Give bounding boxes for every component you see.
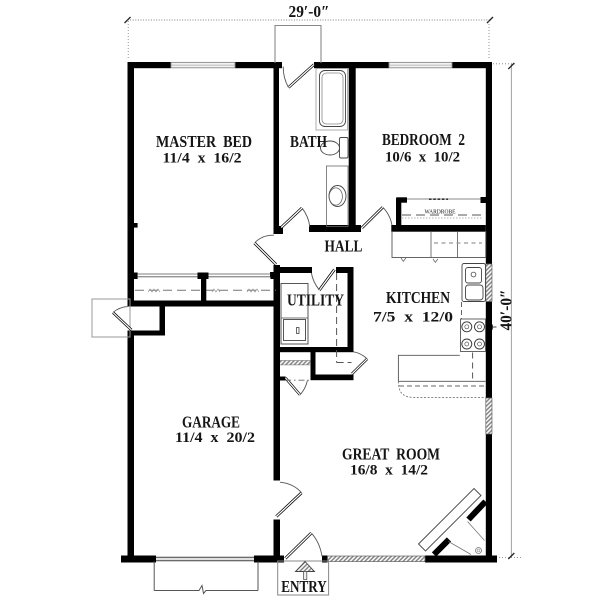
svg-text:40′-0″: 40′-0″ [497,290,516,331]
svg-text:ENTRY: ENTRY [281,577,327,596]
svg-text:10/6 x 10/2: 10/6 x 10/2 [385,150,460,166]
svg-text:11/4 x 16/2: 11/4 x 16/2 [163,151,242,167]
svg-text:BATH: BATH [290,132,327,151]
svg-text:16/8 x 14/2: 16/8 x 14/2 [350,463,428,479]
svg-text:HALL: HALL [325,237,363,256]
svg-text:KITCHEN: KITCHEN [386,288,450,307]
svg-text:11/4 x 20/2: 11/4 x 20/2 [175,430,255,446]
svg-text:GARAGE: GARAGE [182,413,240,432]
svg-text:GREAT ROOM: GREAT ROOM [342,445,440,464]
svg-text:BEDROOM 2: BEDROOM 2 [382,130,465,149]
svg-text:29′-0″: 29′-0″ [289,2,330,21]
svg-text:7/5 x 12/0: 7/5 x 12/0 [373,310,453,326]
svg-text:MASTER BED: MASTER BED [156,132,252,151]
svg-text:UTILITY: UTILITY [287,291,344,310]
